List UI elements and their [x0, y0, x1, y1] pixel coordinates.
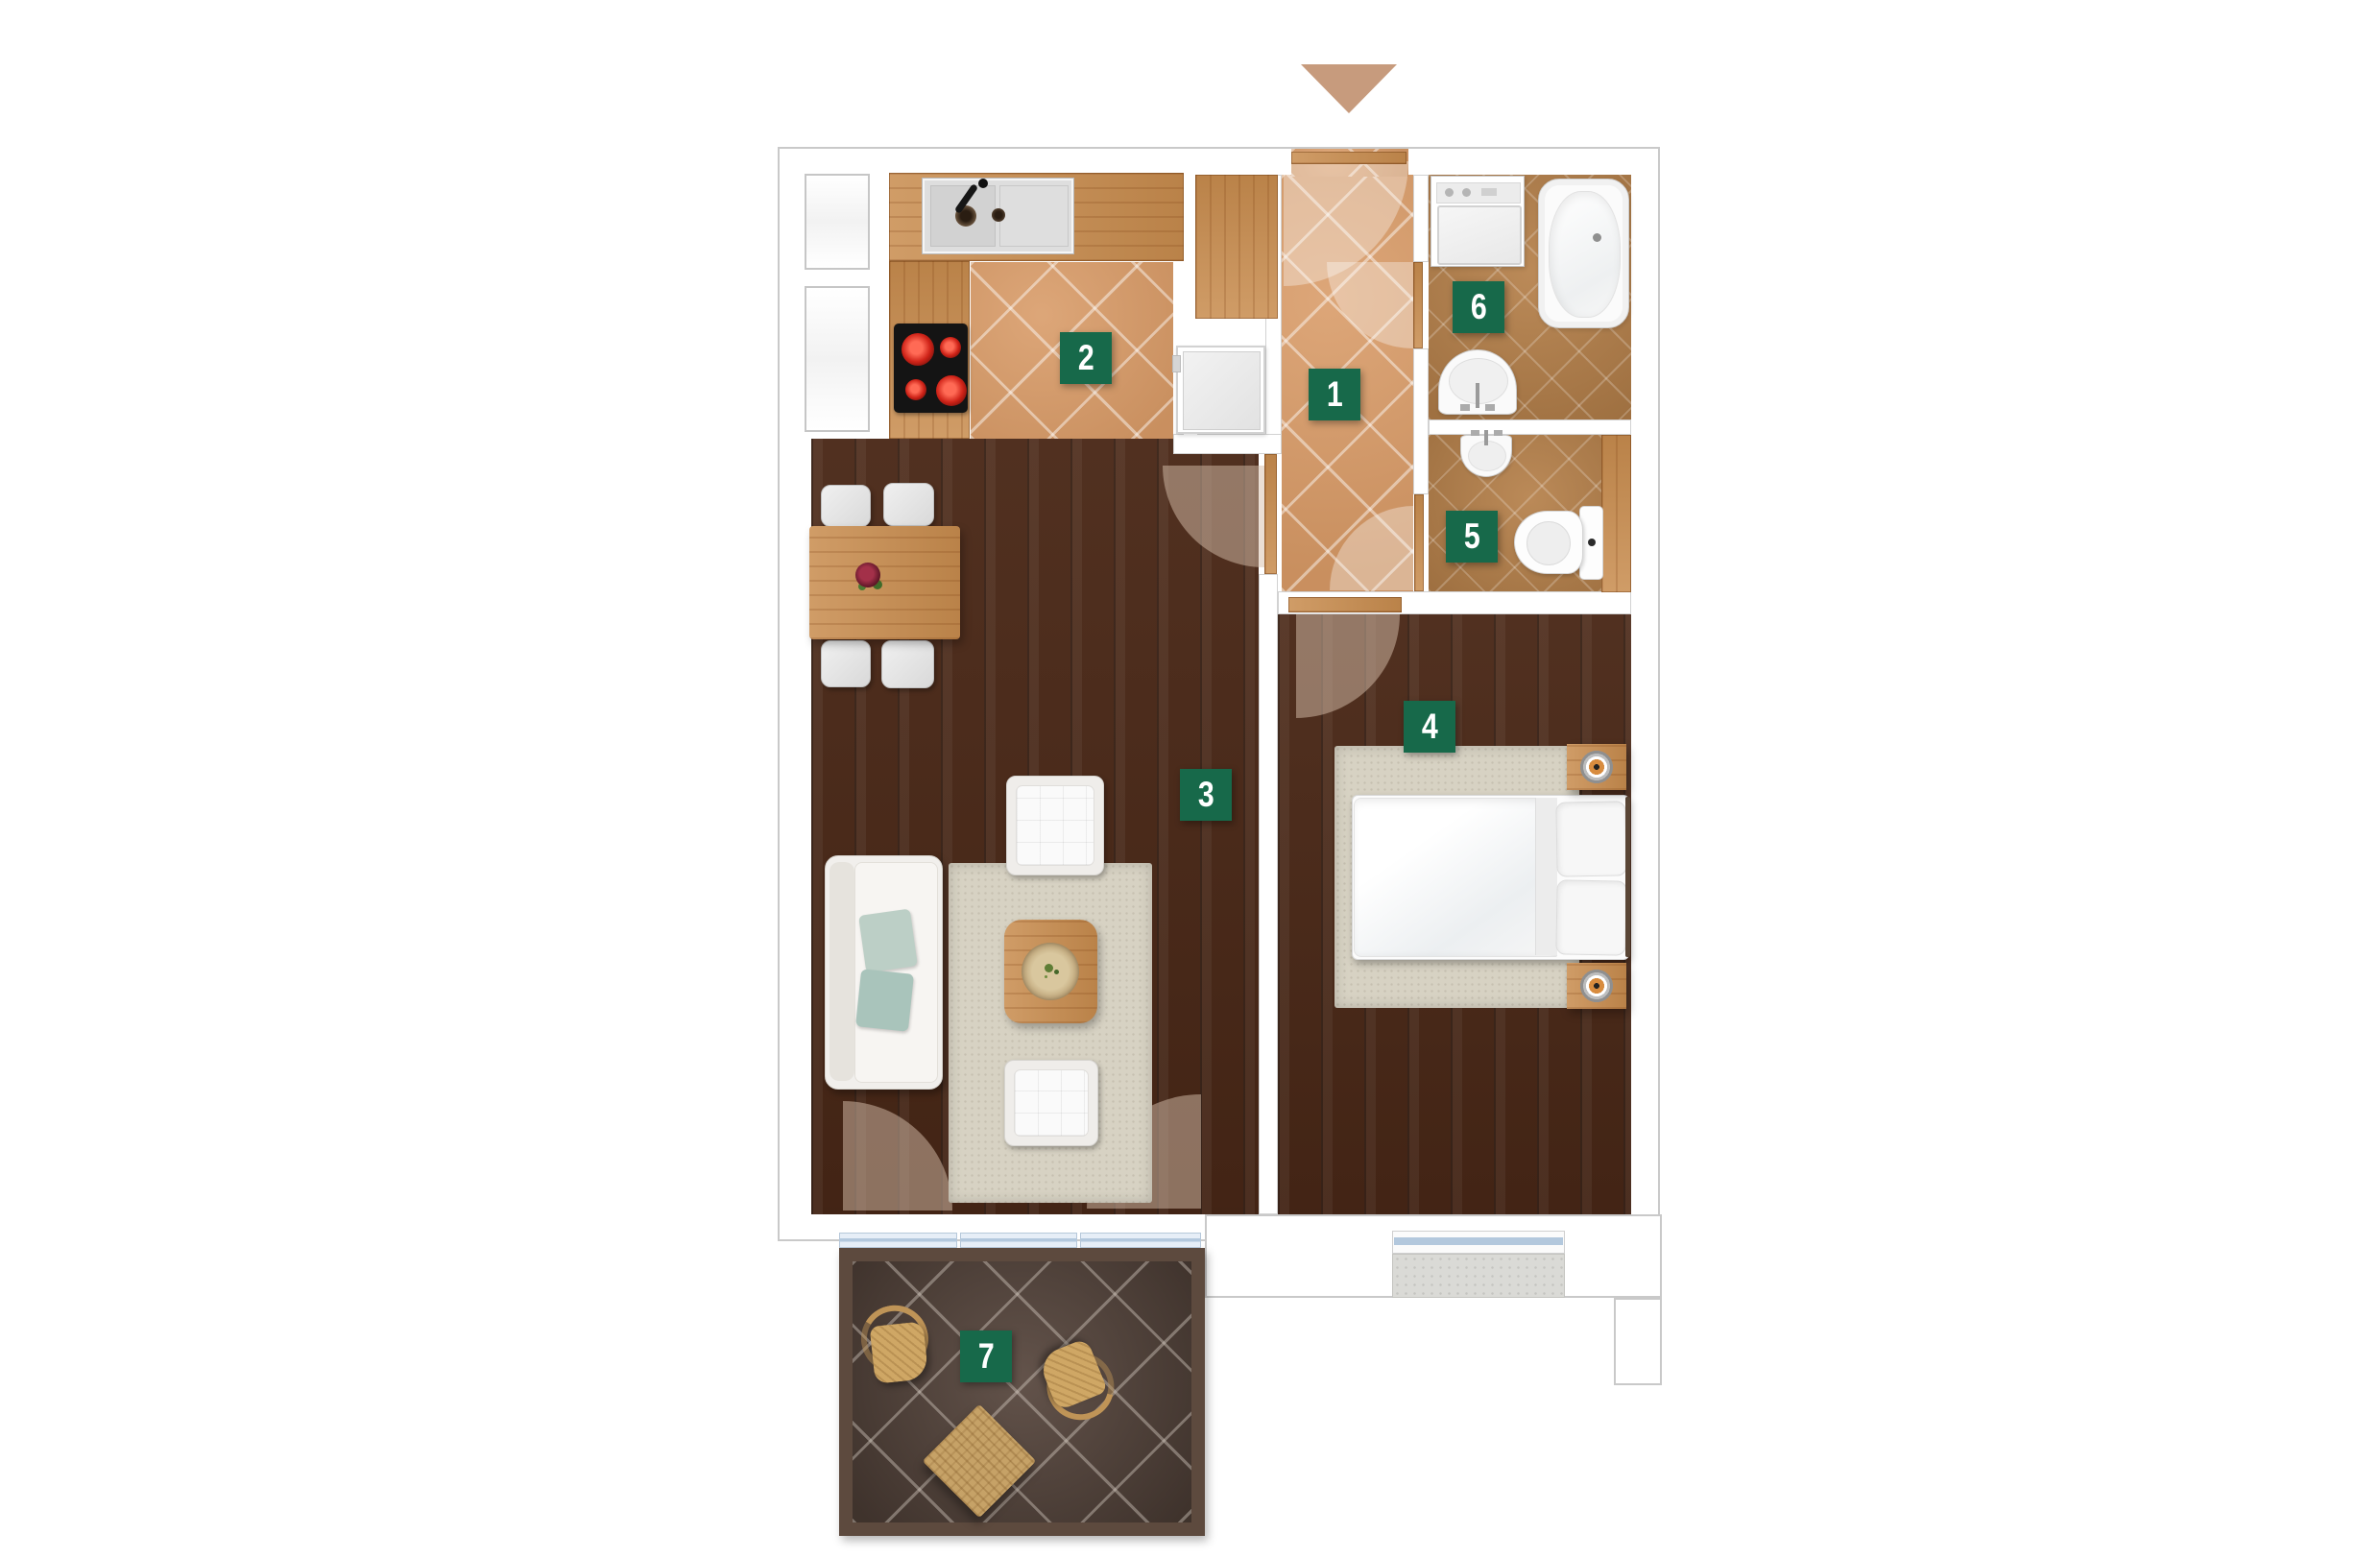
sofa — [825, 855, 943, 1090]
kitchen-tall-cabinet — [1195, 175, 1278, 319]
living-door-leaf — [1264, 454, 1277, 574]
room-label-balcony: 7 — [960, 1330, 1012, 1382]
serving-tray-icon — [1022, 943, 1079, 1000]
faucet-handle-icon — [1485, 404, 1495, 411]
nightstand — [1567, 744, 1626, 790]
dining-chair — [821, 485, 871, 527]
toilet-bowl — [1514, 511, 1583, 574]
burner-icon — [936, 375, 967, 406]
floor-plan: 1 2 3 4 5 6 7 — [0, 0, 2380, 1558]
bathtub — [1538, 179, 1629, 328]
burner-icon — [905, 379, 926, 400]
fridge-handle — [1172, 355, 1181, 372]
faucet-handle-icon — [1460, 404, 1470, 411]
kitchen-window-upper — [805, 174, 870, 270]
washer-knob-icon — [1445, 188, 1454, 197]
sink-divider — [999, 185, 1069, 247]
room-label-bedroom: 4 — [1404, 701, 1455, 753]
bed-duvet — [1354, 798, 1557, 957]
sofa-backrest — [829, 862, 854, 1081]
faucet-icon — [1476, 383, 1479, 408]
burner-icon — [940, 337, 961, 358]
bathtub-drain-icon — [1593, 233, 1601, 242]
bathroom-door-leaf — [1413, 262, 1423, 348]
sofa-pillow — [855, 969, 914, 1031]
armchair — [1004, 1060, 1098, 1146]
burner-icon — [902, 333, 934, 366]
bed-sheet-fold — [1535, 798, 1557, 955]
toilet-seat — [1527, 521, 1571, 565]
faucet-icon — [1484, 430, 1488, 445]
balcony-door-glass-left — [839, 1233, 957, 1248]
bathtub-basin — [1549, 191, 1621, 318]
fridge — [1176, 346, 1265, 434]
wall-bathroom-toilet — [1429, 419, 1631, 435]
lamp-icon — [1579, 750, 1614, 784]
fridge-door — [1183, 351, 1261, 430]
entrance-door-leaf — [1291, 152, 1406, 164]
dining-chair — [881, 640, 934, 688]
dining-chair — [883, 483, 934, 526]
wall-below-fridge — [1173, 434, 1282, 454]
wall-stub-corner — [1614, 1298, 1662, 1385]
kitchen-sink — [923, 179, 1073, 253]
toilet-door-leaf — [1414, 494, 1424, 591]
wicker-chair-seat — [870, 1321, 929, 1384]
sofa-pillow — [858, 909, 918, 973]
washing-machine — [1430, 176, 1525, 267]
lamp-icon — [1579, 969, 1614, 1003]
bedroom-door-leaf — [1288, 597, 1402, 612]
dining-chair — [821, 640, 871, 687]
toilet — [1514, 506, 1603, 580]
room-label-toilet: 5 — [1446, 511, 1498, 563]
washer-knob-icon — [1462, 188, 1471, 197]
nightstand — [1567, 963, 1626, 1009]
balcony-door-glass-right — [1080, 1233, 1201, 1248]
coffee-table — [1004, 920, 1097, 1023]
tray-leaves — [1045, 964, 1053, 972]
armchair — [1006, 776, 1104, 875]
balcony-door-glass-middle — [960, 1233, 1077, 1248]
toilet-side-panel — [1601, 435, 1631, 592]
stove — [894, 324, 968, 413]
bed-pillow — [1555, 879, 1626, 955]
room-label-living-room: 3 — [1180, 769, 1232, 821]
washer-display — [1481, 188, 1497, 196]
armchair-cushion — [1016, 785, 1094, 866]
kitchen-window-lower — [805, 286, 870, 432]
flower-vase-icon — [855, 563, 880, 587]
flush-button-icon — [1588, 539, 1596, 546]
room-label-bathroom: 6 — [1453, 281, 1504, 333]
armchair-cushion — [1014, 1069, 1089, 1137]
faucet-handle-icon — [1471, 430, 1479, 436]
room-label-kitchen: 2 — [1060, 332, 1112, 384]
window-sill-concrete — [1392, 1254, 1565, 1298]
wall-living-bedroom — [1259, 574, 1278, 1214]
sink-drain-small — [992, 208, 1005, 222]
wall-hall-toilet-mid — [1413, 348, 1429, 494]
entrance-arrow-icon — [1301, 64, 1397, 113]
wall-hall-bathroom-upper — [1413, 175, 1429, 262]
bed-headboard — [1625, 797, 1630, 957]
living-rug — [949, 863, 1152, 1203]
room-label-hallway: 1 — [1309, 369, 1360, 420]
dining-table — [809, 526, 960, 639]
double-bed — [1352, 795, 1629, 960]
bedroom-window-glass — [1394, 1237, 1563, 1245]
washer-controls — [1436, 182, 1521, 204]
washer-lid — [1437, 205, 1522, 265]
faucet-handle-icon — [1494, 430, 1503, 436]
sink-faucet-icon — [978, 179, 988, 188]
bed-pillow — [1555, 801, 1626, 876]
